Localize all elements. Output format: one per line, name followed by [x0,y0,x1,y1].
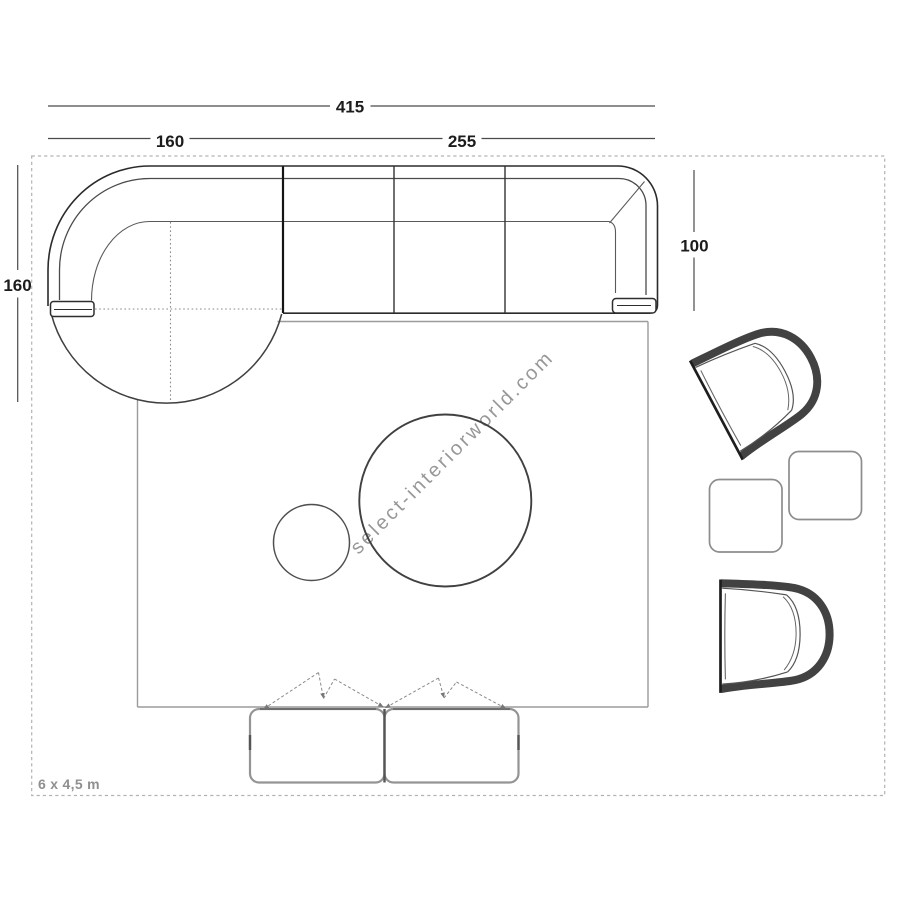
svg-text:160: 160 [156,132,184,151]
svg-text:100: 100 [680,237,708,256]
svg-text:255: 255 [448,132,476,151]
svg-text:6 x 4,5 m: 6 x 4,5 m [38,776,100,792]
svg-text:415: 415 [336,98,364,117]
svg-text:160: 160 [3,276,31,295]
